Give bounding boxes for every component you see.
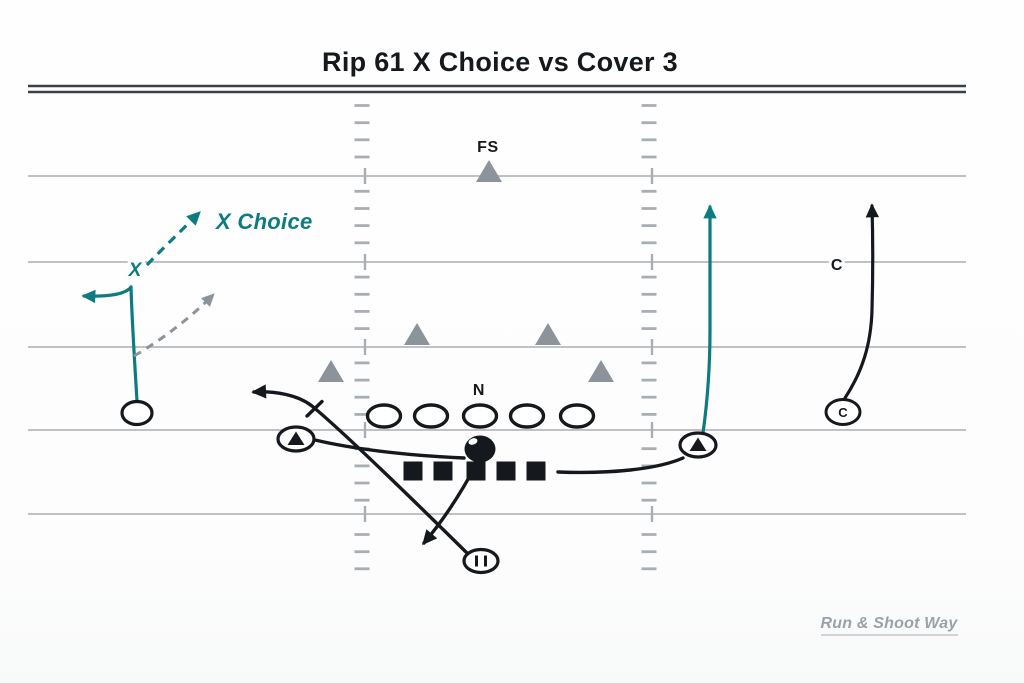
offensive-lineman bbox=[415, 405, 448, 427]
protection-square bbox=[527, 462, 546, 481]
x-choice-stem-route bbox=[131, 287, 137, 401]
protection-square-shape bbox=[527, 462, 546, 481]
back-circle bbox=[464, 550, 498, 573]
overhang-right-triangle-shape bbox=[588, 360, 614, 382]
watermark: Run & Shoot Way bbox=[821, 615, 959, 632]
free-safety-label: FS bbox=[477, 139, 499, 156]
linebacker-right-triangle-shape bbox=[535, 323, 561, 345]
x-receiver bbox=[122, 402, 152, 425]
cornerback-bail-route bbox=[845, 206, 873, 398]
nose-label: N bbox=[473, 382, 485, 399]
x-choice-upfield-dashed-route bbox=[147, 213, 199, 265]
lineman-oval bbox=[368, 405, 401, 427]
lineman-oval bbox=[511, 405, 544, 427]
qb-oval bbox=[465, 436, 496, 463]
protection-square bbox=[434, 462, 453, 481]
protection-square-shape bbox=[404, 462, 423, 481]
protection-square-shape bbox=[434, 462, 453, 481]
right-slot-connector-route bbox=[558, 458, 683, 472]
protection-square bbox=[404, 462, 423, 481]
free-safety-triangle-shape bbox=[476, 160, 502, 182]
linebacker-left-triangle bbox=[404, 323, 430, 345]
overhang-left-triangle bbox=[318, 360, 344, 382]
lineman-oval bbox=[464, 405, 497, 427]
routes bbox=[84, 206, 873, 553]
route-name-label: X Choice bbox=[214, 209, 313, 234]
cornerback-right: C bbox=[826, 400, 860, 425]
linebacker-left-triangle-shape bbox=[404, 323, 430, 345]
protection-square bbox=[497, 462, 516, 481]
right-slot-seam-route bbox=[703, 207, 710, 433]
linebacker-right-triangle bbox=[535, 323, 561, 345]
diagram-title: Rip 61 X Choice vs Cover 3 bbox=[322, 47, 678, 77]
receiver-circle bbox=[122, 402, 152, 425]
protection-square-shape bbox=[467, 462, 486, 481]
free-safety-triangle bbox=[476, 160, 502, 182]
offensive-lineman bbox=[511, 405, 544, 427]
offensive-lineman bbox=[368, 405, 401, 427]
offensive-lineman bbox=[561, 405, 594, 427]
x-choice-out-branch-route bbox=[84, 287, 131, 296]
field-lines bbox=[28, 86, 966, 569]
play-diagram: C Rip 61 X Choice vs Cover 3 FS N C X Ch… bbox=[0, 0, 1024, 683]
hash-marks bbox=[355, 106, 657, 569]
left-slot bbox=[278, 427, 314, 451]
right-slot bbox=[680, 433, 716, 457]
overhang-left-triangle-shape bbox=[318, 360, 344, 382]
field-canvas: C Rip 61 X Choice vs Cover 3 FS N C X Ch… bbox=[0, 0, 1024, 683]
left-slot-connector-route bbox=[315, 440, 464, 458]
offensive-lineman bbox=[464, 405, 497, 427]
running-back bbox=[464, 550, 498, 573]
protection-square bbox=[467, 462, 486, 481]
protection-square-shape bbox=[497, 462, 516, 481]
x-receiver-label: X bbox=[128, 260, 143, 281]
lineman-oval bbox=[561, 405, 594, 427]
corner-circle-letter: C bbox=[838, 405, 848, 420]
corner-drop-label: C bbox=[831, 257, 843, 274]
quarterback bbox=[465, 436, 496, 463]
overhang-right-triangle bbox=[588, 360, 614, 382]
lineman-oval bbox=[415, 405, 448, 427]
